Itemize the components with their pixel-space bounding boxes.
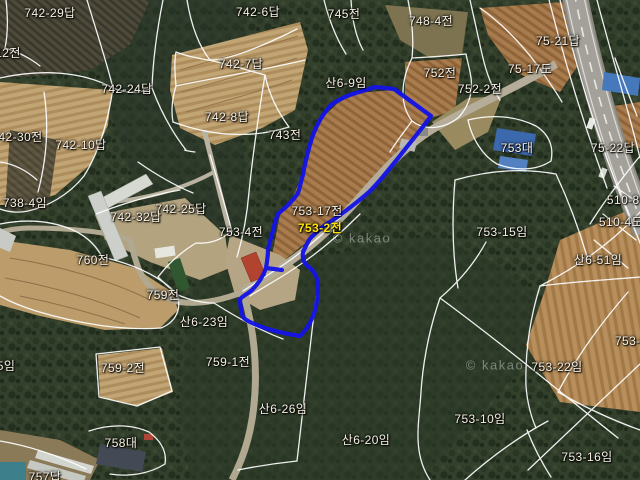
- parcel-label[interactable]: 산6-20임: [342, 434, 391, 446]
- parcel-label[interactable]: 753-15임: [476, 226, 527, 238]
- parcel-label[interactable]: 산6-23임: [180, 316, 229, 328]
- parcel-label[interactable]: 760전: [77, 254, 110, 266]
- map-provider-watermark: © kakao: [466, 358, 524, 373]
- map-provider-watermark: © kakao: [333, 231, 391, 246]
- parcel-label[interactable]: 759-1전: [206, 356, 250, 368]
- parcel-label[interactable]: 510-8전: [607, 194, 640, 206]
- parcel-label[interactable]: 752-2전: [458, 83, 502, 95]
- parcel-label[interactable]: 510-4도: [599, 216, 640, 228]
- parcel-label[interactable]: 12전: [0, 47, 21, 59]
- parcel-label[interactable]: 742-29답: [24, 7, 75, 19]
- parcel-label-layer: 742-29답742-6답745전748-4전75-21답12전742-7답75…: [0, 0, 640, 480]
- parcel-label[interactable]: 759전: [147, 289, 180, 301]
- parcel-label[interactable]: 742-25답: [155, 203, 206, 215]
- parcel-label[interactable]: 742-6답: [236, 6, 280, 18]
- parcel-label[interactable]: 752전: [424, 67, 457, 79]
- parcel-label[interactable]: 753-9임: [615, 335, 640, 347]
- parcel-label[interactable]: 759-2전: [101, 362, 145, 374]
- parcel-label[interactable]: 742-8답: [205, 111, 249, 123]
- parcel-label[interactable]: 75-17도: [508, 63, 552, 75]
- parcel-label[interactable]: 753-4전: [219, 226, 263, 238]
- parcel-label[interactable]: 753-16임: [561, 451, 612, 463]
- parcel-label[interactable]: 742-24답: [101, 83, 152, 95]
- parcel-label[interactable]: 742-32답: [110, 211, 161, 223]
- parcel-label[interactable]: 745전: [328, 8, 361, 20]
- parcel-label[interactable]: 산6-51임: [574, 254, 623, 266]
- parcel-label[interactable]: 757답: [29, 471, 62, 480]
- parcel-label[interactable]: 5임: [0, 360, 15, 372]
- parcel-label[interactable]: 산6-9임: [325, 77, 366, 89]
- parcel-label[interactable]: 75-21답: [536, 35, 580, 47]
- parcel-label[interactable]: 753-10임: [454, 413, 505, 425]
- parcel-label[interactable]: 738-4임: [3, 197, 47, 209]
- parcel-label[interactable]: 748-4전: [409, 15, 453, 27]
- parcel-label[interactable]: 742-7답: [219, 58, 263, 70]
- parcel-label[interactable]: 742-10답: [55, 139, 106, 151]
- parcel-label[interactable]: 742-30전: [0, 131, 43, 143]
- parcel-label[interactable]: 753-17전: [291, 205, 342, 217]
- parcel-label[interactable]: 758대: [105, 437, 138, 449]
- parcel-label[interactable]: 743전: [269, 129, 302, 141]
- parcel-label[interactable]: 753대: [501, 142, 534, 154]
- parcel-label[interactable]: 산6-26임: [259, 403, 308, 415]
- map-viewport[interactable]: 742-29답742-6답745전748-4전75-21답12전742-7답75…: [0, 0, 640, 480]
- parcel-label[interactable]: 753-22임: [531, 361, 582, 373]
- parcel-label[interactable]: 75-22답: [591, 142, 635, 154]
